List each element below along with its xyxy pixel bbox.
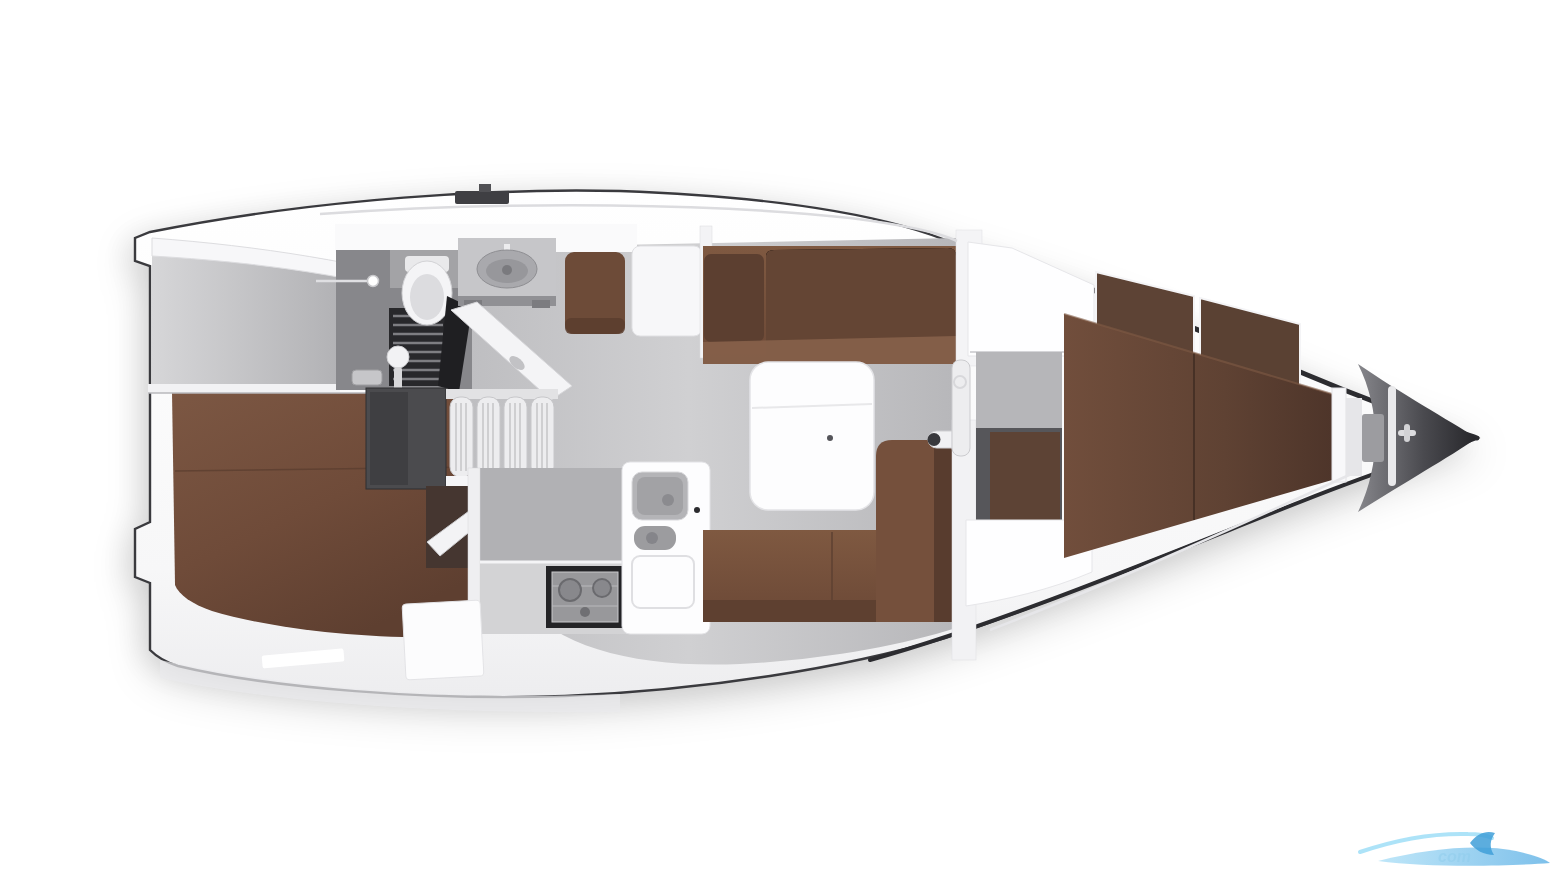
sink-large-drain bbox=[662, 494, 674, 506]
hatch-stub bbox=[479, 184, 491, 192]
yacht-floorplan-image: Sailing yacht interior floor plan — top-… bbox=[0, 0, 1560, 877]
bow-fitting-pin-v bbox=[1404, 424, 1410, 442]
interior bbox=[148, 184, 1477, 712]
galley-back-face bbox=[474, 468, 630, 566]
step-slat bbox=[531, 397, 554, 477]
galley-sink-unit bbox=[622, 462, 710, 634]
watermark-text: com bbox=[1438, 848, 1471, 865]
companionway-hatch bbox=[455, 191, 509, 204]
sink-small-drain bbox=[646, 532, 658, 544]
aft-bulkhead-wall bbox=[148, 384, 340, 393]
shower-head-icon bbox=[387, 346, 409, 368]
nav-seat-edge bbox=[565, 318, 625, 334]
vanity-bracket-right bbox=[532, 300, 550, 308]
step-slat bbox=[504, 397, 527, 477]
chart-table bbox=[632, 246, 702, 336]
l-sofa-bottom-backrest bbox=[703, 600, 885, 622]
galley-foot-locker bbox=[402, 600, 484, 680]
toilet-bowl bbox=[410, 274, 444, 320]
watermark-logo: com bbox=[1360, 832, 1550, 866]
salon-table bbox=[750, 362, 874, 510]
step-slat bbox=[450, 397, 473, 477]
windlass-block bbox=[1362, 414, 1384, 462]
mast-post bbox=[952, 360, 970, 456]
table-dot bbox=[827, 435, 833, 441]
stove-icon bbox=[546, 566, 624, 628]
windlass-bar bbox=[1388, 386, 1396, 486]
vberth-foot-box bbox=[1346, 398, 1362, 476]
shower-stem bbox=[394, 367, 402, 391]
settee-top-backrest-left bbox=[704, 254, 764, 342]
fwd-niche-panel bbox=[990, 432, 1060, 520]
wet-locker-shade bbox=[370, 392, 408, 485]
bow-area bbox=[1358, 364, 1477, 512]
forward-cabin bbox=[952, 230, 1362, 660]
counter-dot bbox=[694, 507, 700, 513]
floorplan-svg: Sailing yacht interior floor plan — top-… bbox=[0, 0, 1560, 877]
step-slat bbox=[477, 397, 500, 477]
sink-drain bbox=[502, 265, 512, 275]
vberth-foot-wall bbox=[1332, 388, 1346, 482]
callout-dot bbox=[368, 276, 379, 287]
soap-tray bbox=[352, 370, 382, 385]
grab-rail-cap bbox=[928, 433, 941, 446]
